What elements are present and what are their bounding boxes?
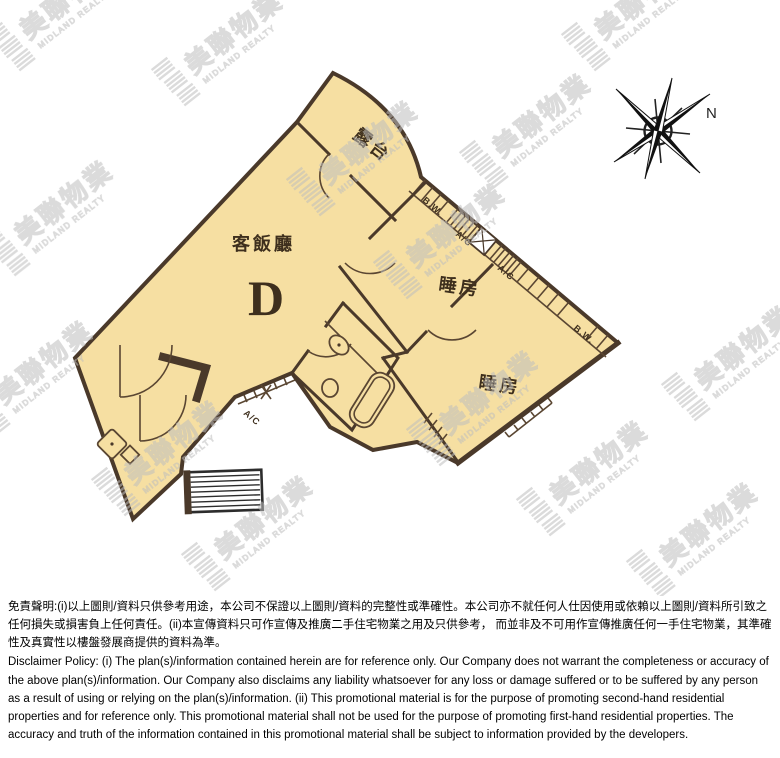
- disclaimer-chinese: 免責聲明:(i)以上圖則/資料只供參考用途，本公司不保證以上圖則/資料的完整性或…: [8, 598, 772, 652]
- living-dining-label: 客飯廳: [232, 233, 295, 254]
- floor-plan-canvas: 美聯物業 MIDLAND REALTY: [0, 0, 780, 596]
- kitchen-sink-icon: [110, 442, 113, 445]
- disclaimer-block: 免責聲明:(i)以上圖則/資料只供參考用途，本公司不保證以上圖則/資料的完整性或…: [8, 598, 772, 745]
- floor-plan-page: 美聯物業 MIDLAND REALTY: [0, 0, 780, 758]
- compass-rose: N: [614, 78, 717, 179]
- ac-label-3: A/C: [242, 408, 263, 428]
- basin-icon: [322, 379, 338, 397]
- disclaimer-english: Disclaimer Policy: (i) The plan(s)/infor…: [8, 653, 772, 744]
- unit-letter: D: [248, 270, 284, 326]
- compass-north-label: N: [706, 105, 717, 122]
